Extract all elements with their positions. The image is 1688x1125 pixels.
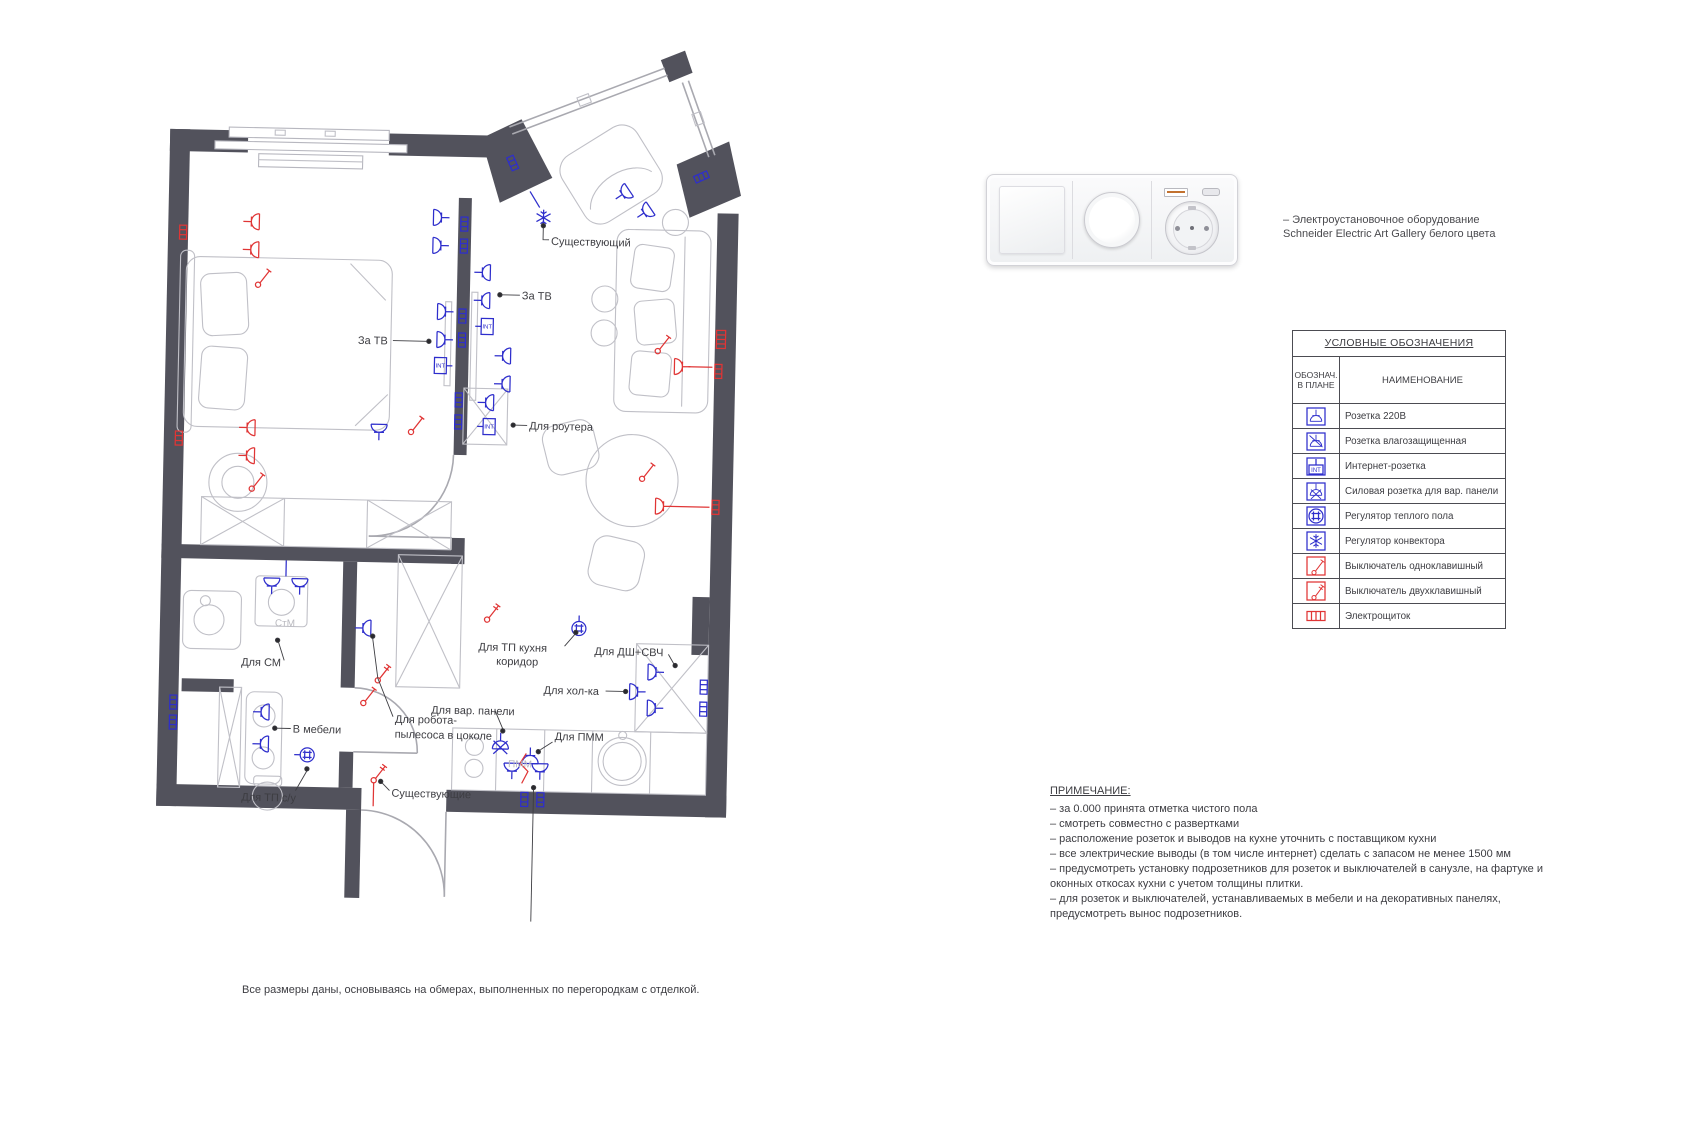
footer-caption: Все размеры даны, основываясь на обмерах… (242, 984, 699, 996)
legend-title: УСЛОВНЫЕ ОБОЗНАЧЕНИЯ (1293, 331, 1505, 357)
legend-table: УСЛОВНЫЕ ОБОЗНАЧЕНИЯ ОБОЗНАЧ. В ПЛАНЕ НА… (1292, 330, 1506, 629)
note-item: – все электрические выводы (в том числе … (1050, 847, 1555, 862)
label-pmm: ПММ (508, 759, 532, 770)
label-pmm-socket: Для ПММ (555, 731, 604, 744)
usb-c-port-icon (1202, 188, 1220, 196)
usb-a-port-icon (1164, 188, 1188, 197)
label-existing-bottom: Существующие (391, 788, 471, 802)
socket-usb-icon (1151, 181, 1231, 259)
label-stm: СтМ (275, 618, 295, 629)
socket-waterproof-icon (1293, 429, 1340, 453)
label-hob: Для вар. панели (431, 704, 515, 718)
legend-header-row: ОБОЗНАЧ. В ПЛАНЕ НАИМЕНОВАНИЕ (1293, 357, 1505, 404)
label-dsh-svch: Для ДШ+СВЧ (594, 646, 663, 659)
label-za-tv-bedroom: За ТВ (358, 335, 388, 348)
label-tp-bathroom: Для ТП с/у (241, 791, 296, 804)
legend-row-socket-internet: INT Интернет-розетка (1293, 454, 1505, 479)
note-item: – для розеток и выключателей, устанавлив… (1050, 892, 1555, 922)
label-fridge: Для хол-ка (543, 685, 600, 698)
floor-heating-regulator-icon (1293, 504, 1340, 528)
legend-row-socket-220v: Розетка 220В (1293, 404, 1505, 429)
legend-row-switch-double: Выключатель двухклавишный (1293, 579, 1505, 604)
bedroom-window (215, 127, 408, 170)
note-item: – за 0.000 принята отметка чистого пола (1050, 802, 1555, 817)
svg-text:INT: INT (1311, 468, 1321, 474)
dimmer-knob-icon (1072, 181, 1152, 259)
product-caption-line2: Schneider Electric Art Gallery белого цв… (1283, 227, 1513, 241)
walls (154, 40, 744, 906)
note-item: – расположение розеток и выводов на кухн… (1050, 832, 1555, 847)
label-existing-top: Существующий (551, 236, 631, 250)
label-washer: Для СМ (241, 656, 281, 669)
electrical-panel-icon (1293, 604, 1340, 628)
label-tp-kitchen-line2: коридор (496, 656, 538, 669)
legend-row-socket-waterproof: Розетка влагозащищенная (1293, 429, 1505, 454)
product-caption: – Электроустановочное оборудование Schne… (1283, 213, 1513, 241)
label-za-tv-living: За ТВ (522, 290, 552, 303)
note-item: – смотреть совместно с развертками (1050, 817, 1555, 832)
legend-row-convector: Регулятор конвектора (1293, 529, 1505, 554)
int-label-living: INT (482, 324, 492, 330)
rocker-switch-icon (993, 181, 1072, 259)
int-label-bedroom: INT (435, 363, 445, 369)
int-label-router: INT (484, 424, 494, 430)
switch-single-icon (1293, 554, 1340, 578)
legend-col2-header: НАИМЕНОВАНИЕ (1340, 357, 1505, 403)
product-image-switch-plate (986, 174, 1238, 266)
label-tp-kitchen-line1: Для ТП кухня (478, 641, 547, 654)
legend-row-socket-power: Силовая розетка для вар. панели (1293, 479, 1505, 504)
switch-double-icon (1293, 579, 1340, 603)
note-item: – предусмотреть установку подрозетников … (1050, 862, 1555, 892)
label-in-furniture: В мебели (293, 724, 342, 737)
product-caption-line1: – Электроустановочное оборудование (1283, 213, 1513, 227)
socket-220v-icon (1293, 404, 1340, 428)
legend-row-switch-single: Выключатель одноклавишный (1293, 554, 1505, 579)
drawing-sheet: INT INT INT (0, 0, 1688, 1125)
legend-row-panel: Электрощиток (1293, 604, 1505, 628)
notes-title: ПРИМЕЧАНИЕ: (1050, 784, 1555, 799)
convector-regulator-icon (1293, 529, 1340, 553)
socket-internet-icon: INT (1293, 454, 1340, 478)
notes-block: ПРИМЕЧАНИЕ: – за 0.000 принята отметка ч… (1050, 784, 1555, 922)
floor-plan: INT INT INT (141, 34, 779, 927)
balcony-glazing (509, 65, 717, 157)
socket-power-icon (1293, 479, 1340, 503)
label-router: Для роутера (529, 420, 594, 433)
legend-col1-header: ОБОЗНАЧ. В ПЛАНЕ (1293, 357, 1340, 403)
plan-labels: Существующий За ТВ За ТВ Для роутера СтМ… (235, 230, 672, 927)
label-robot-line2: пылесоса в цоколе (395, 729, 493, 743)
legend-row-floor-heating: Регулятор теплого пола (1293, 504, 1505, 529)
